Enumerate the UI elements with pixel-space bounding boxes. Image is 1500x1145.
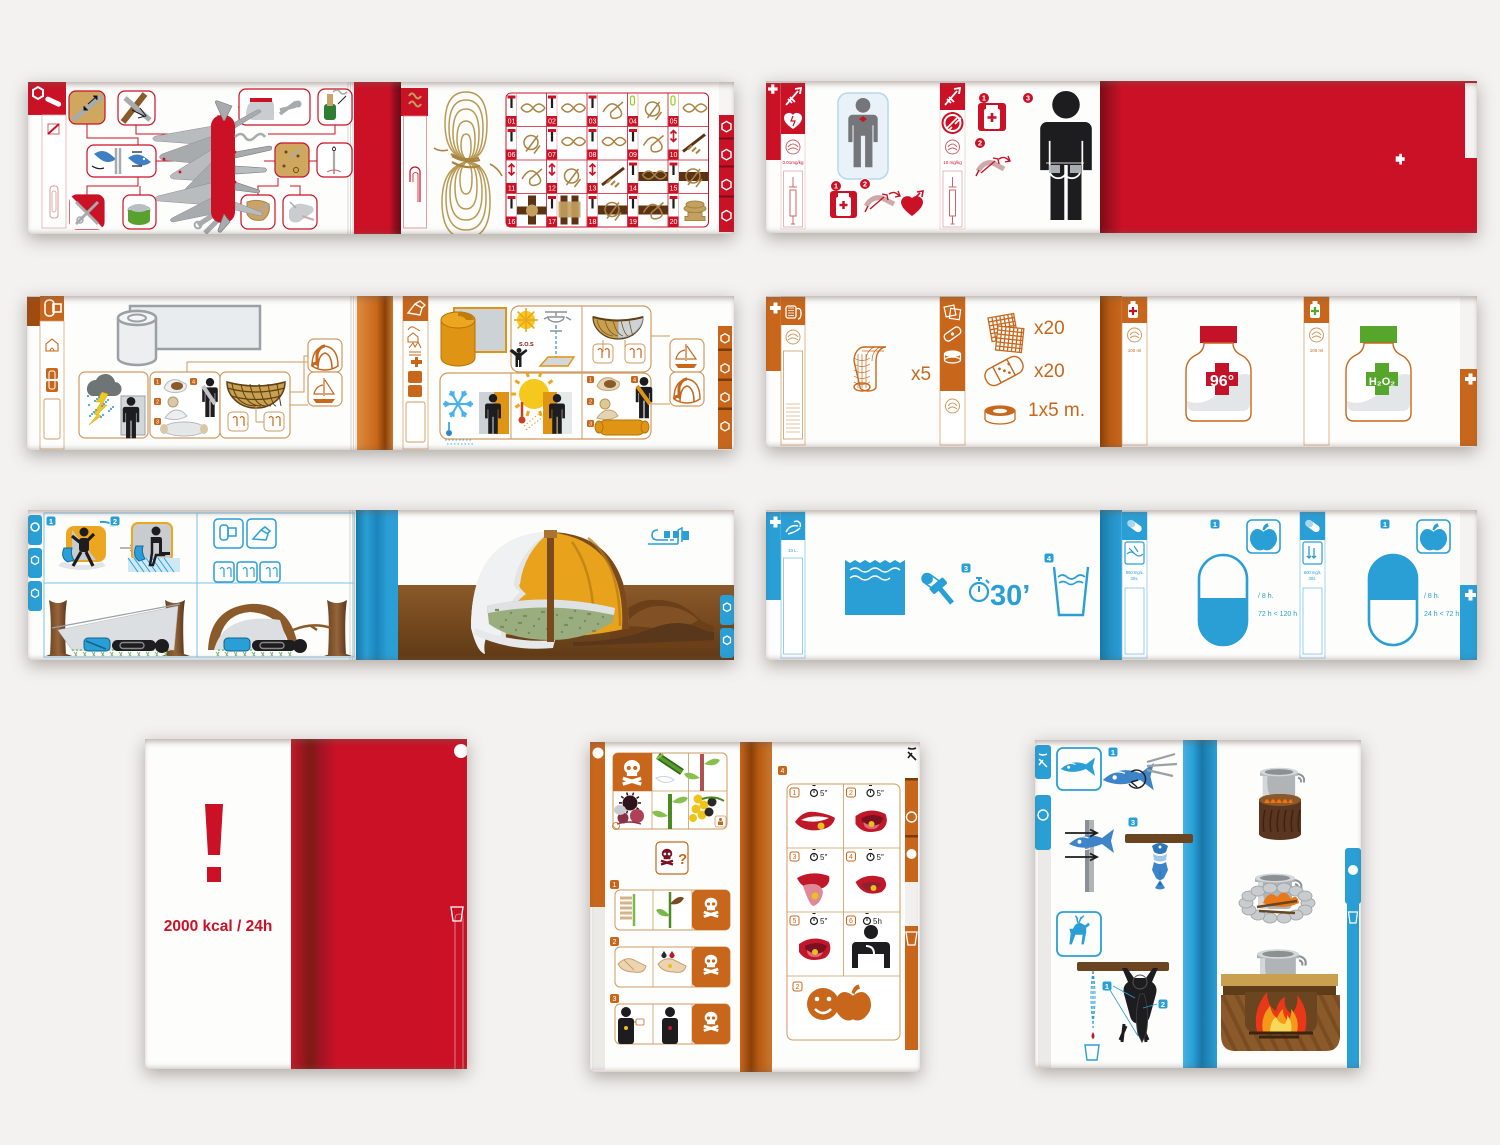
svg-text:x20: x20: [1034, 361, 1065, 382]
svg-text:": ": [241, 564, 243, 569]
svg-text:2: 2: [849, 790, 853, 797]
svg-text:1: 1: [1105, 982, 1109, 991]
svg-text:x20: x20: [1034, 318, 1065, 339]
svg-text:11: 11: [508, 186, 515, 193]
svg-text:/ 8 h.: / 8 h.: [1258, 593, 1274, 600]
svg-text:2: 2: [863, 180, 867, 189]
svg-text:2: 2: [613, 939, 617, 946]
svg-text:72 h < 120 h: 72 h < 120 h: [1258, 611, 1297, 618]
svg-text:": ": [264, 564, 266, 569]
svg-text:4: 4: [781, 768, 785, 775]
svg-text:2: 2: [796, 984, 800, 991]
svg-text:3: 3: [1131, 818, 1135, 827]
svg-text:6: 6: [849, 918, 853, 925]
svg-text:2000 kcal / 24h: 2000 kcal / 24h: [164, 918, 273, 935]
svg-text:30s.: 30s.: [1131, 576, 1139, 581]
svg-text:18: 18: [589, 219, 597, 226]
svg-text:3: 3: [964, 564, 968, 573]
svg-text:/ 8 h.: / 8 h.: [1424, 593, 1440, 600]
svg-text:5″: 5″: [820, 789, 827, 798]
svg-text:16: 16: [508, 219, 516, 226]
svg-text:4: 4: [192, 379, 195, 385]
svg-text:4: 4: [633, 377, 636, 383]
svg-text:07: 07: [548, 152, 556, 159]
svg-text:01: 01: [508, 119, 516, 126]
svg-text:5″: 5″: [877, 789, 884, 798]
svg-text:1: 1: [589, 377, 592, 383]
svg-text:0.01mg/kg: 0.01mg/kg: [782, 160, 804, 165]
svg-text:19: 19: [629, 219, 637, 226]
svg-text:4: 4: [849, 854, 853, 861]
svg-text:1: 1: [982, 94, 986, 103]
svg-text:5″: 5″: [820, 853, 827, 862]
svg-text:13: 13: [589, 186, 597, 193]
svg-text:2: 2: [156, 399, 159, 405]
svg-text:02: 02: [548, 119, 556, 126]
svg-text:20: 20: [670, 219, 678, 226]
svg-text:10 L.: 10 L.: [788, 548, 798, 553]
svg-text:x5: x5: [911, 364, 931, 385]
svg-text:1: 1: [1111, 748, 1115, 757]
svg-text:3: 3: [793, 854, 797, 861]
svg-text:1: 1: [49, 517, 53, 526]
svg-text:3: 3: [589, 421, 592, 427]
svg-text:96°: 96°: [1210, 373, 1234, 390]
svg-text:1: 1: [1213, 520, 1217, 529]
svg-text:17: 17: [548, 219, 556, 226]
svg-text:5″: 5″: [820, 917, 827, 926]
svg-text:2: 2: [113, 517, 117, 526]
svg-text:3: 3: [156, 419, 159, 425]
svg-text:600 mg/L: 600 mg/L: [1304, 570, 1322, 575]
svg-text:": ": [218, 564, 220, 569]
svg-text:5h: 5h: [873, 917, 882, 926]
svg-text:3: 3: [613, 996, 617, 1003]
svg-text:14: 14: [629, 186, 637, 193]
svg-text:15: 15: [670, 186, 678, 193]
svg-text:1: 1: [613, 882, 617, 889]
svg-text:S.O.S: S.O.S: [519, 342, 534, 348]
svg-text:10: 10: [670, 152, 678, 159]
svg-text:24 h < 72 h: 24 h < 72 h: [1424, 611, 1459, 618]
svg-text:5: 5: [793, 918, 797, 925]
svg-text:100 ml: 100 ml: [1310, 348, 1324, 353]
svg-text:2: 2: [1161, 1000, 1165, 1009]
svg-text:03: 03: [589, 119, 597, 126]
svg-text:1: 1: [156, 379, 159, 385]
svg-text:2: 2: [978, 139, 982, 148]
svg-text:100 ml: 100 ml: [1128, 348, 1142, 353]
svg-text:06: 06: [508, 152, 516, 159]
svg-text:1x5 m.: 1x5 m.: [1028, 400, 1085, 421]
svg-text:30s.: 30s.: [1309, 576, 1317, 581]
svg-text:08: 08: [589, 152, 597, 159]
svg-text:05: 05: [670, 119, 678, 126]
svg-text:?: ?: [678, 851, 687, 868]
svg-text:12: 12: [548, 186, 556, 193]
svg-text:1: 1: [793, 790, 797, 797]
svg-text:09: 09: [629, 152, 637, 159]
svg-text:2: 2: [589, 399, 592, 405]
svg-text:850 mg/L: 850 mg/L: [1126, 570, 1144, 575]
svg-text:04: 04: [629, 119, 637, 126]
svg-text:H₂O₂: H₂O₂: [1369, 376, 1395, 388]
svg-text:5″: 5″: [877, 853, 884, 862]
svg-text:3: 3: [1026, 94, 1030, 103]
svg-text:1: 1: [834, 182, 838, 191]
svg-text:30’: 30’: [990, 580, 1030, 612]
svg-text:10 mg/kg: 10 mg/kg: [943, 160, 962, 165]
svg-text:1: 1: [1383, 520, 1387, 529]
